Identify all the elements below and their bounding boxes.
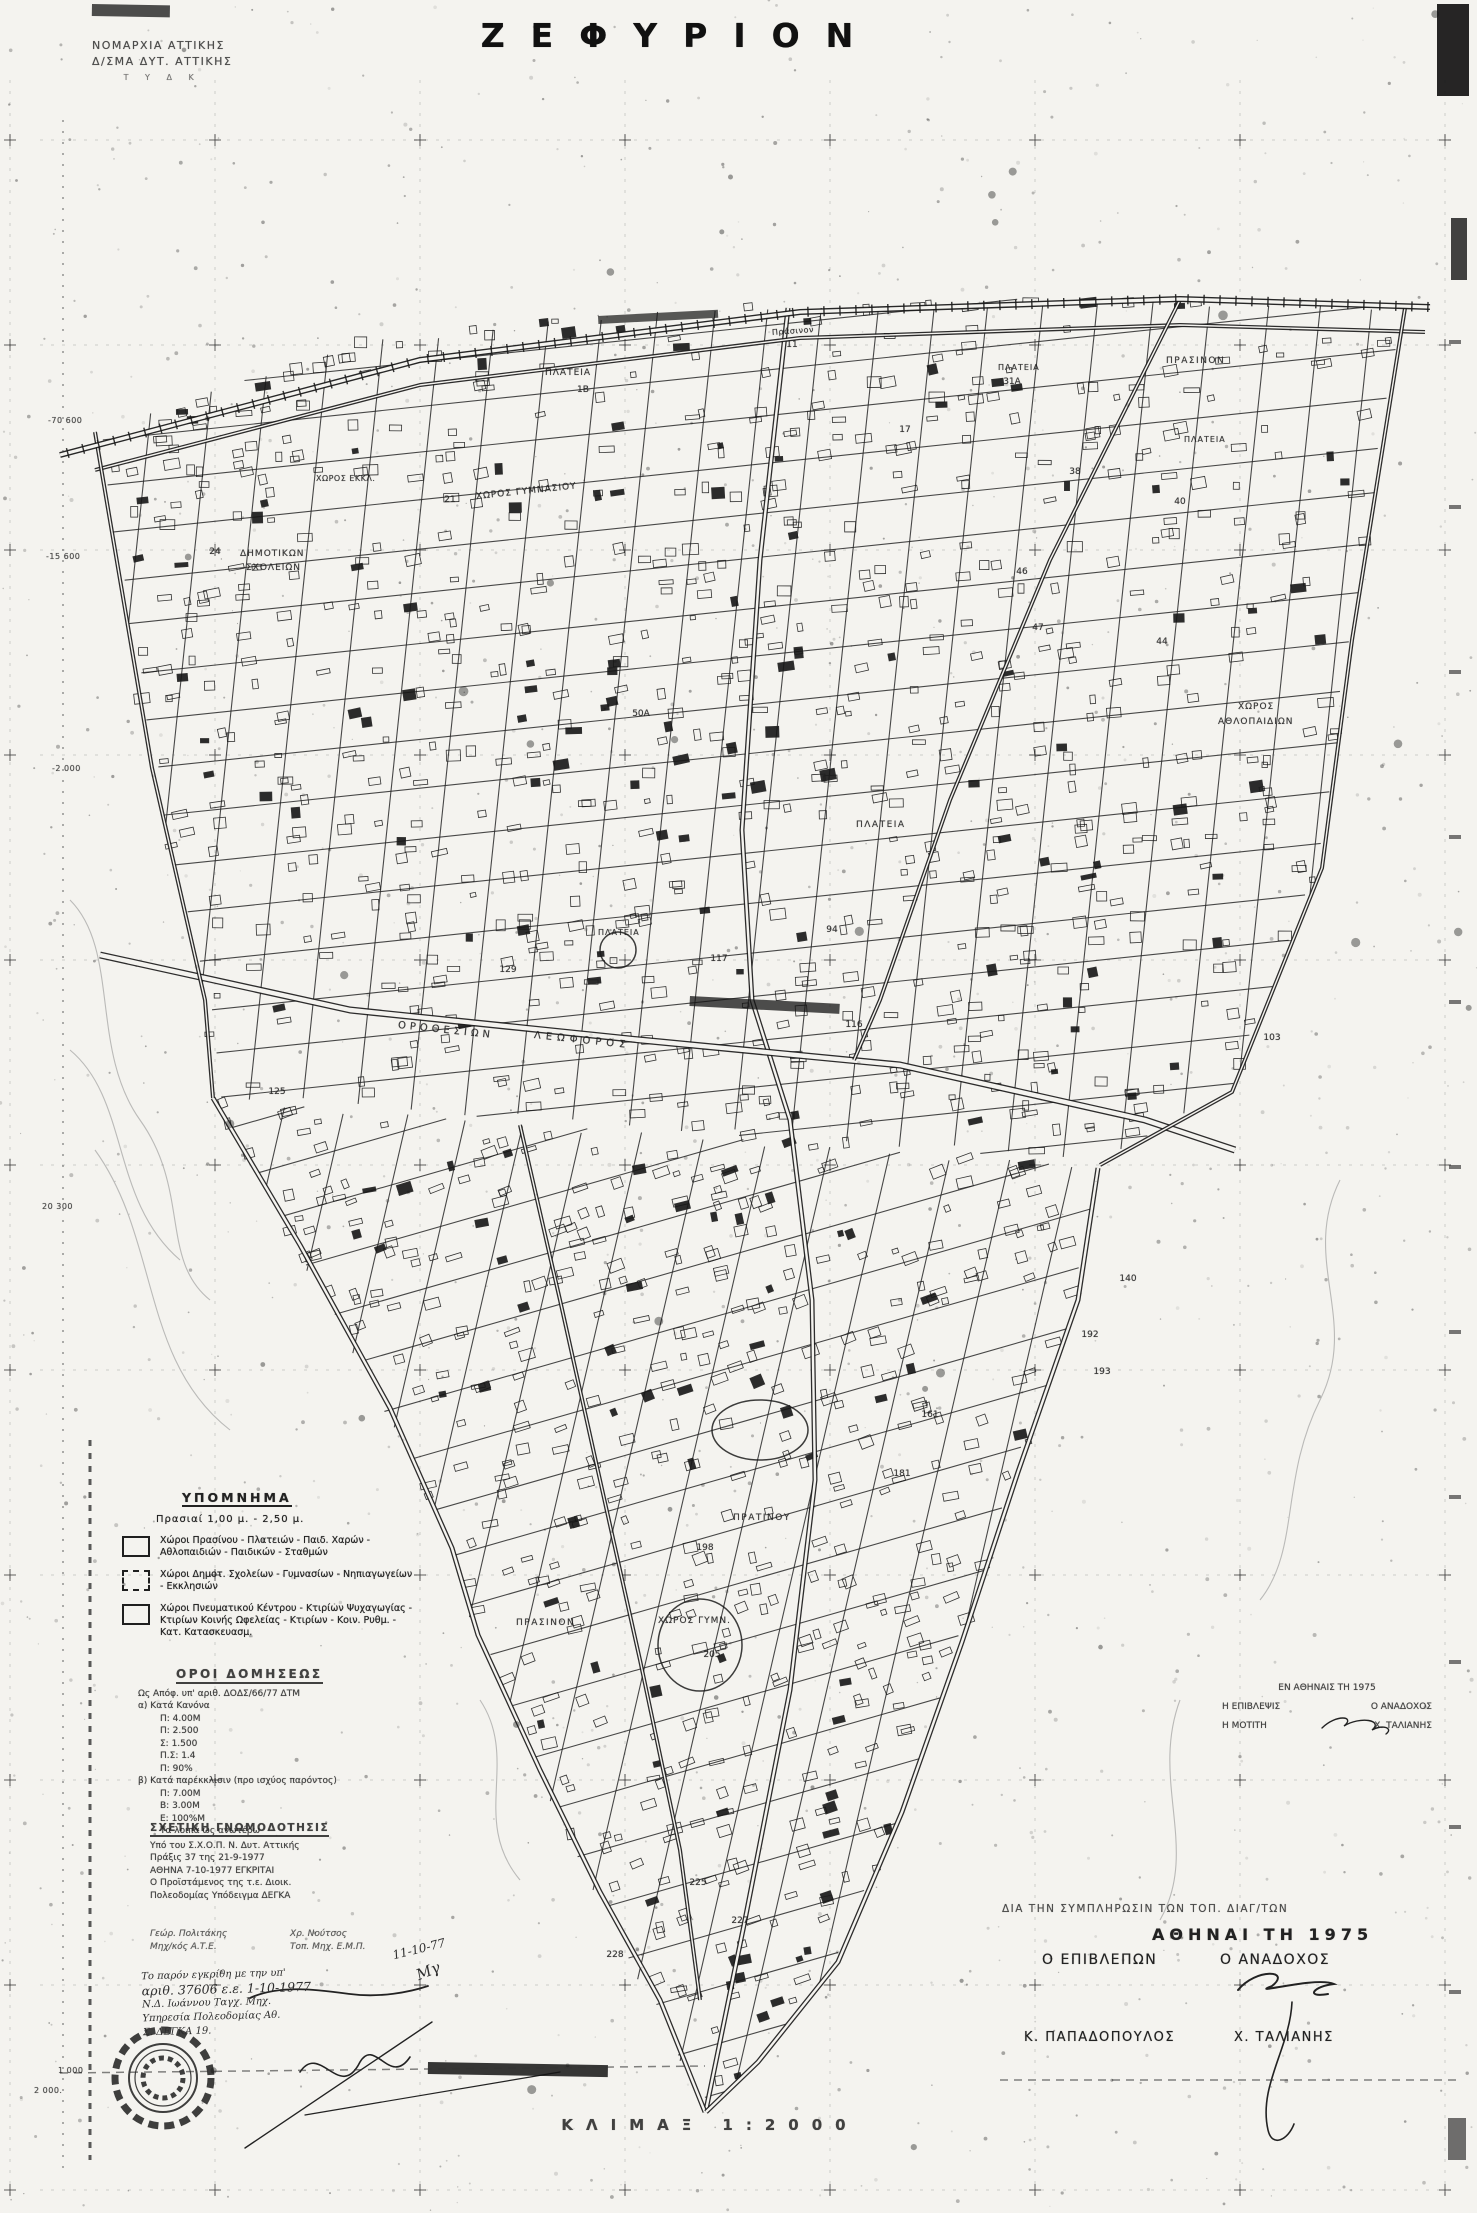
signoff-city-date: ΑΘΗΝΑΙ ΤΗ 1975 <box>1152 1925 1452 1944</box>
field-sign-right-name: Χ. ΤΑΛΙΑΝΗΣ <box>1374 1720 1432 1733</box>
opinion-line: Ο Προϊστάμενος της τ.ε. Διοικ. <box>150 1877 450 1890</box>
legend-prasiai: Πρασιαί 1,00 μ. - 2,50 μ. <box>156 1514 422 1526</box>
terms-a-line: Π: 90% <box>160 1763 438 1776</box>
building-terms-title: ΟΡΟΙ ΔΟΜΗΣΕΩΣ <box>176 1668 323 1684</box>
legend: ΥΠΟΜΝΗΜΑ Πρασιαί 1,00 μ. - 2,50 μ. Χώροι… <box>122 1492 422 1649</box>
signoff-note: ΔΙΑ ΤΗΝ ΣΥΜΠΛΗΡΩΣΙΝ ΤΩΝ ΤΟΠ. ΔΙΑΓ/ΤΩΝ <box>1002 1903 1452 1915</box>
scan-artifact <box>1448 2118 1466 2160</box>
legend-item: Χώροι Πνευματικού Κέντρου - Κτιρίων Ψυχα… <box>122 1603 422 1639</box>
terms-a-line: Σ: 1.500 <box>160 1738 438 1751</box>
terms-b-header: β) Κατά παρέκκλισιν (προ ισχύος παρόντος… <box>138 1775 438 1788</box>
terms-a-line: Π: 2.500 <box>160 1725 438 1738</box>
legend-item: Χώροι Πρασίνου - Πλατειών - Παιδ. Χαρών … <box>122 1535 422 1559</box>
legend-title: ΥΠΟΜΝΗΜΑ <box>182 1492 292 1507</box>
scan-artifact <box>1437 4 1469 96</box>
terms-a-line: Π.Σ: 1.4 <box>160 1750 438 1763</box>
opinion-line: Υπό του Σ.Χ.Ο.Π. Ν. Δυτ. Αττικής <box>150 1840 450 1853</box>
building-terms: ΟΡΟΙ ΔΟΜΗΣΕΩΣ Ως Απόφ. υπ' αριθ. ΔΟΔΣ/66… <box>138 1668 438 1838</box>
field-sign-block: ΕΝ ΑΘΗΝΑΙΣ ΤΗ 1975 Η ΕΠΙΒΛΕΨΙΣ Ο ΑΝΑΔΟΧΟ… <box>1222 1682 1432 1733</box>
opinion-name-right-title: Τοπ. Μηχ. Ε.Μ.Π. <box>290 1941 430 1954</box>
terms-b-line: Π: 7.00Μ <box>160 1788 438 1801</box>
signoff-block: ΔΙΑ ΤΗΝ ΣΥΜΠΛΗΡΩΣΙΝ ΤΩΝ ΤΟΠ. ΔΙΑΓ/ΤΩΝ ΑΘ… <box>1002 1903 1452 2050</box>
terms-a-line: Π: 4.00Μ <box>160 1713 438 1726</box>
opinion-line: ΑΘΗΝΑ 7-10-1977 ΕΓΚΡΙΤΑΙ <box>150 1865 450 1878</box>
official-seal-stamp <box>115 2030 211 2126</box>
signature-stroke <box>305 2072 560 2115</box>
signoff-right-role: Ο ΑΝΑΔΟΧΟΣ <box>1220 1952 1330 1968</box>
legend-swatch-public-buildings <box>122 1604 150 1625</box>
opinion-line: Πολεοδομίας Υπόδειγμα ΔΕΓΚΑ <box>150 1890 450 1903</box>
scan-artifact <box>428 2062 608 2077</box>
legend-item-label: Χώροι Πρασίνου - Πλατειών - Παιδ. Χαρών … <box>160 1535 418 1559</box>
handwritten-approval: Το παρόν εγκρίθη με την υπ' αριθ. 37606 … <box>141 1962 473 2041</box>
legend-swatch-schools <box>122 1570 150 1591</box>
scan-artifact <box>92 4 170 17</box>
opinion-line: Πράξις 37 της 21-9-1977 <box>150 1852 450 1865</box>
field-sign-left-role: Η ΕΠΙΒΛΕΨΙΣ <box>1222 1701 1280 1714</box>
scan-artifact <box>689 996 839 1014</box>
field-sign-date: ΕΝ ΑΘΗΝΑΙΣ ΤΗ 1975 <box>1222 1682 1432 1695</box>
opinion-name-left-title: Μηχ/κός Α.Τ.Ε. <box>150 1941 290 1954</box>
legend-item-label: Χώροι Πνευματικού Κέντρου - Κτιρίων Ψυχα… <box>160 1603 418 1639</box>
legend-item-label: Χώροι Δημοτ. Σχολείων - Γυμνασίων - Νηπι… <box>160 1569 418 1593</box>
signoff-right-name: Χ. ΤΑΛΙΑΝΗΣ <box>1234 2030 1334 2045</box>
legend-item: Χώροι Δημοτ. Σχολείων - Γυμνασίων - Νηπι… <box>122 1569 422 1593</box>
opinion-name-right: Χρ. Νούτσος <box>290 1928 430 1941</box>
signoff-left-name: Κ. ΠΑΠΑΔΟΠΟΥΛΟΣ <box>1024 2030 1175 2045</box>
scanned-map-sheet: { "title": "ΖΕΦΥΡΙΟΝ", "agency": { "line… <box>0 0 1477 2213</box>
terms-b-line: Β: 3.00Μ <box>160 1800 438 1813</box>
signoff-left-role: Ο ΕΠΙΒΛΕΠΩΝ <box>1042 1952 1157 1968</box>
terms-a-header: α) Κατά Κανόνα <box>138 1700 438 1713</box>
terms-intro: Ως Απόφ. υπ' αριθ. ΔΟΔΣ/66/77 ΔΤΜ <box>138 1688 438 1701</box>
opinion-title: ΣΧΕΤΙΚΗ ΓΝΩΜΟΔΟΤΗΣΙΣ <box>150 1822 329 1837</box>
field-sign-left-sub: Η ΜΟΤΙΤΗ <box>1222 1720 1267 1733</box>
field-sign-right-role: Ο ΑΝΑΔΟΧΟΣ <box>1371 1701 1432 1714</box>
legend-swatch-green-spaces <box>122 1536 150 1557</box>
opinion-name-left: Γεώρ. Πολιτάκης <box>150 1928 290 1941</box>
opinion-block: ΣΧΕΤΙΚΗ ΓΝΩΜΟΔΟΤΗΣΙΣ Υπό του Σ.Χ.Ο.Π. Ν.… <box>150 1822 450 1953</box>
scan-artifact <box>1451 218 1467 280</box>
signature-stroke <box>245 2022 432 2148</box>
